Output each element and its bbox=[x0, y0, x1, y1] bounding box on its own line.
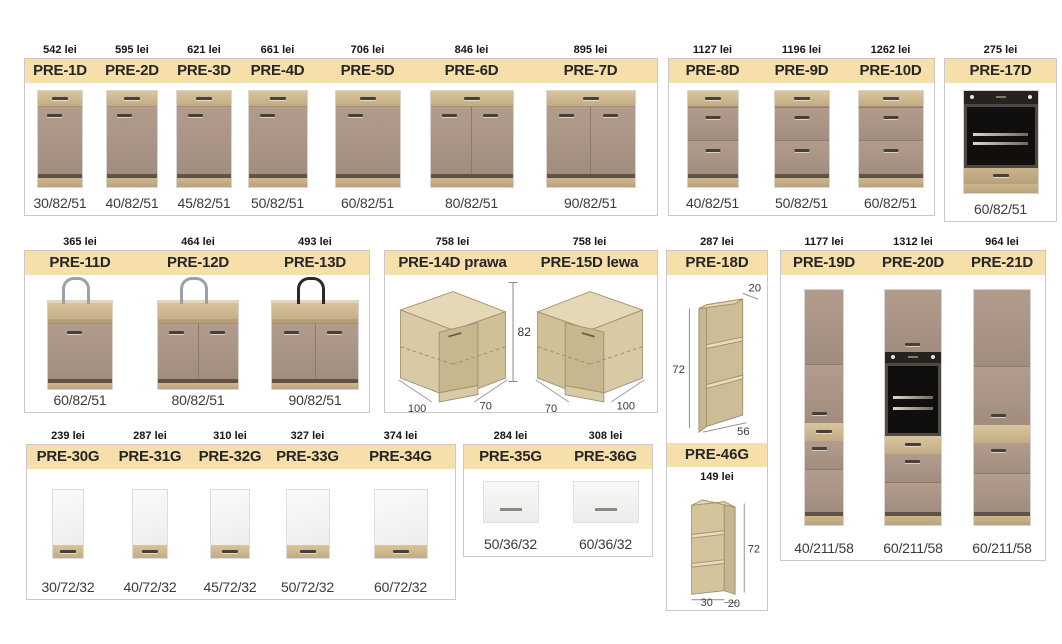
oven-knob-icon bbox=[891, 355, 895, 359]
product-price: 239 lei bbox=[51, 430, 85, 444]
handle-icon bbox=[794, 149, 809, 152]
product-image: 100 70 bbox=[384, 275, 521, 413]
wall-cabinet-image bbox=[287, 490, 329, 558]
group-open-shelf-18-46: 287 lei PRE-18D 20 72 56 PRE-46G 149 lei bbox=[666, 236, 768, 611]
sink-cabinet-image bbox=[48, 277, 112, 389]
product-dimensions: 80/82/51 bbox=[445, 194, 498, 216]
product-image bbox=[420, 83, 523, 194]
handle-icon bbox=[794, 116, 809, 119]
tall-cabinet-image bbox=[974, 290, 1030, 525]
product-dimensions: 60/82/51 bbox=[864, 194, 917, 216]
product-card-pre-34g[interactable]: 374 lei PRE-34G 60/72/32 bbox=[345, 430, 456, 600]
product-code: PRE-1D bbox=[33, 58, 87, 83]
product-image bbox=[558, 469, 653, 535]
corner-cabinet-drawing: 100 70 bbox=[394, 275, 512, 413]
wall-cabinet-image bbox=[211, 490, 249, 558]
wood-band bbox=[211, 545, 249, 558]
product-card-pre-2d[interactable]: 595 lei PRE-2D 40/82/51 bbox=[96, 44, 168, 216]
oven-base-cabinet-image bbox=[964, 91, 1038, 193]
product-card-pre-18d[interactable]: 287 lei PRE-18D 20 72 56 bbox=[666, 236, 768, 443]
product-code: PRE-10D bbox=[860, 58, 922, 83]
handle-icon bbox=[142, 550, 158, 553]
product-dimensions: 60/72/32 bbox=[374, 578, 427, 600]
product-price: 327 lei bbox=[291, 430, 325, 444]
product-dimensions: 40/82/51 bbox=[106, 194, 159, 216]
handle-icon bbox=[270, 97, 286, 100]
product-code: PRE-15D lewa bbox=[541, 250, 639, 275]
open-shelf-drawing: 20 72 56 bbox=[670, 280, 764, 436]
dim-label: 30 bbox=[701, 597, 713, 607]
product-price: 1196 lei bbox=[782, 44, 821, 58]
tall-oven-cabinet-image bbox=[885, 290, 941, 525]
dim-label: 72 bbox=[748, 544, 760, 556]
product-card-pre-46g[interactable]: PRE-46G 149 lei 72 30 20 bbox=[666, 443, 768, 611]
handle-icon bbox=[124, 97, 140, 100]
group-horizontal-wall-35-36: 284 lei PRE-35G 50/36/32 308 lei PRE-36G… bbox=[463, 430, 653, 557]
cabinet-door bbox=[107, 107, 157, 174]
product-image bbox=[780, 275, 868, 539]
wood-band bbox=[375, 545, 427, 558]
wall-cabinet-image bbox=[375, 490, 427, 558]
handle-icon bbox=[603, 114, 618, 117]
dim-label: 70 bbox=[544, 403, 556, 413]
product-code: PRE-5D bbox=[341, 58, 395, 83]
handle-icon bbox=[284, 331, 299, 334]
product-card-pre-8d[interactable]: 1127 lei PRE-8D 40/82/51 bbox=[668, 44, 757, 216]
product-price: 310 lei bbox=[213, 430, 247, 444]
handle-icon bbox=[222, 550, 238, 553]
product-dimensions: 40/72/32 bbox=[124, 578, 177, 600]
product-dimensions: 80/82/51 bbox=[172, 391, 225, 413]
handle-icon bbox=[464, 97, 480, 100]
product-card-pre-6d[interactable]: 846 lei PRE-6D 80/82/51 bbox=[420, 44, 523, 216]
product-dimensions: 40/211/58 bbox=[794, 539, 853, 561]
product-image bbox=[270, 469, 345, 578]
dim-label: 100 bbox=[616, 400, 634, 412]
handle-icon bbox=[883, 116, 898, 119]
cabinet-door bbox=[199, 324, 239, 379]
handle-icon bbox=[583, 97, 599, 100]
product-image: 70 100 bbox=[521, 275, 658, 413]
product-card-pre-12d[interactable]: 464 lei PRE-12D 80/82/51 bbox=[136, 236, 260, 413]
product-code: PRE-13D bbox=[284, 250, 346, 275]
cabinet-door bbox=[177, 107, 231, 174]
oven-knob-icon bbox=[1028, 95, 1032, 99]
product-image bbox=[190, 469, 270, 578]
countertop bbox=[107, 91, 157, 107]
oven-display-icon bbox=[908, 356, 918, 358]
product-price: 964 lei bbox=[985, 236, 1019, 250]
product-price: 1262 lei bbox=[871, 44, 911, 58]
handle-icon bbox=[500, 508, 522, 511]
product-image bbox=[944, 83, 1057, 200]
handle-icon bbox=[60, 550, 76, 553]
handle-icon bbox=[559, 114, 574, 117]
faucet-icon bbox=[180, 277, 208, 304]
product-code: PRE-19D bbox=[793, 250, 855, 275]
faucet-icon bbox=[62, 277, 90, 304]
catalog-page: 542 lei PRE-1D 30/82/51 595 lei PRE-2D 4… bbox=[0, 0, 1062, 644]
product-dimensions: 60/82/51 bbox=[341, 194, 394, 216]
drawer-front bbox=[775, 107, 829, 141]
wood-band bbox=[287, 545, 329, 558]
wood-band bbox=[805, 423, 843, 441]
countertop bbox=[547, 91, 635, 107]
countertop bbox=[249, 91, 307, 107]
product-card-pre-30g[interactable]: 239 lei PRE-30G 30/72/32 bbox=[26, 430, 110, 600]
cabinet-door bbox=[431, 107, 472, 174]
product-card-pre-3d[interactable]: 621 lei PRE-3D 45/82/51 bbox=[168, 44, 240, 216]
product-price: 661 lei bbox=[261, 44, 295, 58]
product-card-pre-5d[interactable]: 706 lei PRE-5D 60/82/51 bbox=[315, 44, 420, 216]
product-image bbox=[315, 83, 420, 194]
countertop bbox=[859, 91, 923, 107]
product-card-pre-1d[interactable]: 542 lei PRE-1D 30/82/51 bbox=[24, 44, 96, 216]
cabinet-door bbox=[48, 324, 112, 379]
cabinet-door bbox=[591, 107, 635, 174]
product-code: PRE-17D bbox=[970, 58, 1032, 83]
handle-icon bbox=[360, 97, 376, 100]
handle-icon bbox=[210, 331, 225, 334]
handle-icon bbox=[67, 331, 82, 334]
dim-label: 72 bbox=[672, 364, 685, 376]
product-card-pre-33g[interactable]: 327 lei PRE-33G 50/72/32 bbox=[270, 430, 345, 600]
product-card-pre-17d[interactable]: 275 lei PRE-17D 60/82/51 bbox=[944, 44, 1057, 222]
oven-knob-icon bbox=[931, 355, 935, 359]
product-image bbox=[96, 83, 168, 194]
drawer-front bbox=[859, 107, 923, 141]
oven-knob-icon bbox=[970, 95, 974, 99]
wood-band bbox=[885, 436, 941, 454]
product-image bbox=[958, 275, 1046, 539]
product-price: 846 lei bbox=[455, 44, 489, 58]
product-code: PRE-30G bbox=[37, 444, 100, 469]
cabinet-door bbox=[38, 107, 82, 174]
product-price: 308 lei bbox=[589, 430, 623, 444]
drawer-front bbox=[688, 107, 738, 141]
handle-icon bbox=[595, 508, 617, 511]
product-image bbox=[136, 275, 260, 391]
oven-control-panel bbox=[885, 352, 941, 363]
product-code: PRE-6D bbox=[445, 58, 499, 83]
wall-cabinet-image bbox=[53, 490, 83, 558]
product-code: PRE-8D bbox=[686, 58, 740, 83]
cabinet-door bbox=[53, 490, 83, 545]
faucet-icon bbox=[297, 277, 325, 304]
handle-icon bbox=[883, 97, 899, 100]
product-dimensions: 50/36/32 bbox=[484, 535, 537, 557]
product-card-pre-11d[interactable]: 365 lei PRE-11D 60/82/51 bbox=[24, 236, 136, 413]
product-dimensions: 60/82/51 bbox=[54, 391, 107, 413]
product-code: PRE-2D bbox=[105, 58, 159, 83]
product-code: PRE-46G bbox=[667, 443, 767, 467]
drawer-front bbox=[688, 140, 738, 174]
product-price: 706 lei bbox=[351, 44, 385, 58]
handle-icon bbox=[483, 114, 498, 117]
product-card-pre-21d[interactable]: 964 lei PRE-21D 60/211/58 bbox=[958, 236, 1046, 561]
cabinet-door bbox=[249, 107, 307, 174]
product-price: 287 lei bbox=[666, 236, 768, 250]
product-card-pre-14d-prawa[interactable]: 758 lei PRE-14D prawa 100 70 bbox=[384, 236, 521, 413]
product-card-pre-4d[interactable]: 661 lei PRE-4D 50/82/51 bbox=[240, 44, 315, 216]
product-dimensions: 60/211/58 bbox=[883, 539, 942, 561]
product-image: 72 30 20 bbox=[666, 489, 768, 607]
handle-icon bbox=[991, 449, 1006, 452]
handle-icon bbox=[348, 114, 363, 117]
wood-band bbox=[53, 545, 83, 558]
group-drawer-cabinets-8-10: 1127 lei PRE-8D 40/82/51 1196 lei PRE-9D… bbox=[668, 44, 935, 216]
base-cabinet-image bbox=[249, 91, 307, 187]
product-code: PRE-18D bbox=[667, 251, 767, 275]
product-price: 1177 lei bbox=[804, 236, 843, 250]
base-cabinet-image bbox=[38, 91, 82, 187]
handle-icon bbox=[812, 447, 827, 450]
product-dimensions: 60/36/32 bbox=[579, 535, 632, 557]
handle-icon bbox=[52, 97, 68, 100]
wood-band bbox=[974, 425, 1030, 443]
group-wall-cabinets-30-34: 239 lei PRE-30G 30/72/32 287 lei PRE-31G… bbox=[26, 430, 456, 600]
dim-label: 70 bbox=[479, 400, 491, 412]
oven-door bbox=[885, 363, 941, 436]
horizontal-wall-cabinet-image bbox=[484, 482, 538, 522]
product-price: 149 lei bbox=[666, 471, 768, 485]
product-price: 758 lei bbox=[573, 236, 607, 250]
product-image bbox=[24, 83, 96, 194]
product-dimensions: 90/82/51 bbox=[289, 391, 342, 413]
product-dimensions: 45/82/51 bbox=[178, 194, 231, 216]
open-shelf-drawing: 72 30 20 bbox=[671, 489, 763, 607]
cabinet-door bbox=[472, 107, 513, 174]
product-price: 464 lei bbox=[181, 236, 215, 250]
handle-icon bbox=[47, 114, 62, 117]
product-code: PRE-31G bbox=[119, 444, 182, 469]
handle-icon bbox=[883, 149, 898, 152]
sink-cabinet-image bbox=[158, 277, 238, 389]
handle-icon bbox=[442, 114, 457, 117]
cabinet-door bbox=[375, 490, 427, 545]
product-card-pre-20d[interactable]: 1312 lei PRE-20D 60/211/58 bbox=[868, 236, 958, 561]
base-cabinet-image bbox=[547, 91, 635, 187]
product-dimensions: 90/82/51 bbox=[564, 194, 617, 216]
handle-icon bbox=[327, 331, 342, 334]
handle-icon bbox=[905, 443, 921, 446]
base-cabinet-image bbox=[177, 91, 231, 187]
product-code: PRE-36G bbox=[574, 444, 637, 469]
product-image bbox=[668, 83, 757, 194]
handle-icon bbox=[812, 412, 827, 415]
group-oven-base-17: 275 lei PRE-17D 60/82/51 bbox=[944, 44, 1057, 222]
handle-icon bbox=[993, 174, 1009, 177]
product-image bbox=[523, 83, 658, 194]
product-price: 287 lei bbox=[133, 430, 167, 444]
product-code: PRE-7D bbox=[564, 58, 618, 83]
handle-icon bbox=[169, 331, 184, 334]
product-dimensions: 50/72/32 bbox=[281, 578, 334, 600]
dimension-line-icon bbox=[513, 282, 514, 382]
base-cabinet-image bbox=[107, 91, 157, 187]
countertop bbox=[431, 91, 513, 107]
product-price: 595 lei bbox=[115, 44, 149, 58]
product-code: PRE-4D bbox=[251, 58, 305, 83]
product-card-pre-32g[interactable]: 310 lei PRE-32G 45/72/32 bbox=[190, 430, 270, 600]
product-price: 284 lei bbox=[494, 430, 528, 444]
handle-icon bbox=[260, 114, 275, 117]
oven-control-panel bbox=[964, 91, 1038, 104]
product-image bbox=[846, 83, 935, 194]
drawer-cabinet-image bbox=[688, 91, 738, 187]
product-dimensions: 60/82/51 bbox=[974, 200, 1027, 222]
product-code: PRE-34G bbox=[369, 444, 432, 469]
product-card-pre-35g[interactable]: 284 lei PRE-35G 50/36/32 bbox=[463, 430, 558, 557]
built-in-oven bbox=[885, 352, 941, 436]
drawer-front bbox=[964, 168, 1038, 184]
product-code: PRE-3D bbox=[177, 58, 231, 83]
cabinet-door bbox=[336, 107, 400, 174]
product-image bbox=[463, 469, 558, 535]
cabinet-door bbox=[316, 324, 359, 379]
countertop bbox=[177, 91, 231, 107]
sink-countertop bbox=[48, 301, 112, 324]
handle-icon bbox=[705, 149, 720, 152]
height-dimension: 82 bbox=[513, 282, 531, 382]
handle-icon bbox=[196, 97, 212, 100]
product-price: 365 lei bbox=[63, 236, 97, 250]
handle-icon bbox=[117, 114, 132, 117]
sink-countertop bbox=[158, 301, 238, 324]
product-code: PRE-11D bbox=[49, 250, 110, 275]
cabinet-door bbox=[547, 107, 591, 174]
cabinet-door bbox=[287, 490, 329, 545]
product-card-pre-15d-lewa[interactable]: 758 lei PRE-15D lewa 70 100 bbox=[521, 236, 658, 413]
handle-icon bbox=[905, 343, 920, 346]
handle-icon bbox=[794, 97, 810, 100]
product-dimensions: 45/72/32 bbox=[204, 578, 257, 600]
countertop bbox=[775, 91, 829, 107]
product-dimensions: 60/211/58 bbox=[972, 539, 1031, 561]
countertop bbox=[688, 91, 738, 107]
product-image bbox=[868, 275, 958, 539]
handle-icon bbox=[300, 550, 316, 553]
product-image bbox=[345, 469, 456, 578]
product-code: PRE-33G bbox=[276, 444, 339, 469]
product-code: PRE-21D bbox=[971, 250, 1033, 275]
group-sink-cabinets-11-13: 365 lei PRE-11D 60/82/51 464 lei PRE-12D… bbox=[24, 236, 370, 413]
handle-icon bbox=[393, 550, 409, 553]
cabinet-door bbox=[211, 490, 249, 545]
product-image bbox=[26, 469, 110, 578]
sink-countertop bbox=[272, 301, 358, 324]
handle-icon bbox=[905, 460, 920, 463]
product-code: PRE-9D bbox=[775, 58, 829, 83]
drawer-front bbox=[859, 140, 923, 174]
product-dimensions: 30/82/51 bbox=[34, 194, 87, 216]
product-price: 758 lei bbox=[436, 236, 470, 250]
product-dimensions: 50/82/51 bbox=[775, 194, 828, 216]
product-dimensions: 30/72/32 bbox=[42, 578, 95, 600]
product-dimensions: 40/82/51 bbox=[686, 194, 739, 216]
product-price: 895 lei bbox=[574, 44, 608, 58]
product-price: 542 lei bbox=[43, 44, 77, 58]
drawer-cabinet-image bbox=[859, 91, 923, 187]
product-card-pre-19d[interactable]: 1177 lei PRE-19D 40/211/58 bbox=[780, 236, 868, 561]
product-card-pre-13d[interactable]: 493 lei PRE-13D 90/82/51 bbox=[260, 236, 370, 413]
group-base-cabinets-1-7: 542 lei PRE-1D 30/82/51 595 lei PRE-2D 4… bbox=[24, 44, 658, 216]
dim-label: 20 bbox=[748, 282, 761, 294]
cabinet-door bbox=[158, 324, 198, 379]
group-tall-cabinets-19-21: 1177 lei PRE-19D 40/211/58 1312 lei PRE-… bbox=[780, 236, 1046, 561]
product-code: PRE-20D bbox=[882, 250, 944, 275]
product-image: 20 72 56 bbox=[666, 280, 768, 436]
product-image bbox=[757, 83, 846, 194]
product-code: PRE-35G bbox=[479, 444, 542, 469]
product-price: 1127 lei bbox=[693, 44, 732, 58]
corner-cabinet-drawing: 70 100 bbox=[531, 275, 649, 413]
cabinet-door bbox=[133, 490, 167, 545]
product-card-pre-9d[interactable]: 1196 lei PRE-9D 50/82/51 bbox=[757, 44, 846, 216]
product-price: 374 lei bbox=[384, 430, 418, 444]
product-card-pre-31g[interactable]: 287 lei PRE-31G 40/72/32 bbox=[110, 430, 190, 600]
drawer-cabinet-image bbox=[775, 91, 829, 187]
handle-icon bbox=[188, 114, 203, 117]
handle-icon bbox=[705, 97, 721, 100]
product-price: 1312 lei bbox=[893, 236, 933, 250]
dim-label: 82 bbox=[518, 325, 531, 339]
countertop bbox=[38, 91, 82, 107]
wall-cabinet-image bbox=[133, 490, 167, 558]
product-image bbox=[260, 275, 370, 391]
group-corner-cabinets-14-15: 758 lei PRE-14D prawa 100 70 758 lei PRE… bbox=[384, 236, 658, 413]
handle-icon bbox=[991, 414, 1006, 417]
oven-display-icon bbox=[996, 96, 1006, 98]
handle-icon bbox=[816, 430, 832, 433]
product-code: PRE-12D bbox=[167, 250, 229, 275]
horizontal-wall-cabinet-image bbox=[574, 482, 638, 522]
cabinet-door bbox=[272, 324, 315, 379]
drawer-front bbox=[775, 140, 829, 174]
product-card-pre-10d[interactable]: 1262 lei PRE-10D 60/82/51 bbox=[846, 44, 935, 216]
product-code: PRE-14D prawa bbox=[398, 250, 506, 275]
product-image bbox=[240, 83, 315, 194]
tall-cabinet-image bbox=[805, 290, 843, 525]
countertop bbox=[336, 91, 400, 107]
product-price: 621 lei bbox=[187, 44, 221, 58]
product-dimensions: 50/82/51 bbox=[251, 194, 304, 216]
wood-band bbox=[133, 545, 167, 558]
oven-door bbox=[964, 104, 1038, 168]
product-code: PRE-32G bbox=[199, 444, 262, 469]
dim-label: 100 bbox=[407, 403, 425, 413]
product-price: 493 lei bbox=[298, 236, 332, 250]
sink-cabinet-image bbox=[272, 277, 358, 389]
product-image bbox=[168, 83, 240, 194]
base-cabinet-image bbox=[431, 91, 513, 187]
dim-label: 20 bbox=[728, 598, 740, 607]
base-cabinet-image bbox=[336, 91, 400, 187]
product-card-pre-36g[interactable]: 308 lei PRE-36G 60/36/32 bbox=[558, 430, 653, 557]
product-price: 275 lei bbox=[984, 44, 1018, 58]
product-image bbox=[24, 275, 136, 391]
dim-label: 56 bbox=[737, 426, 750, 436]
handle-icon bbox=[705, 116, 720, 119]
product-image bbox=[110, 469, 190, 578]
product-card-pre-7d[interactable]: 895 lei PRE-7D 90/82/51 bbox=[523, 44, 658, 216]
